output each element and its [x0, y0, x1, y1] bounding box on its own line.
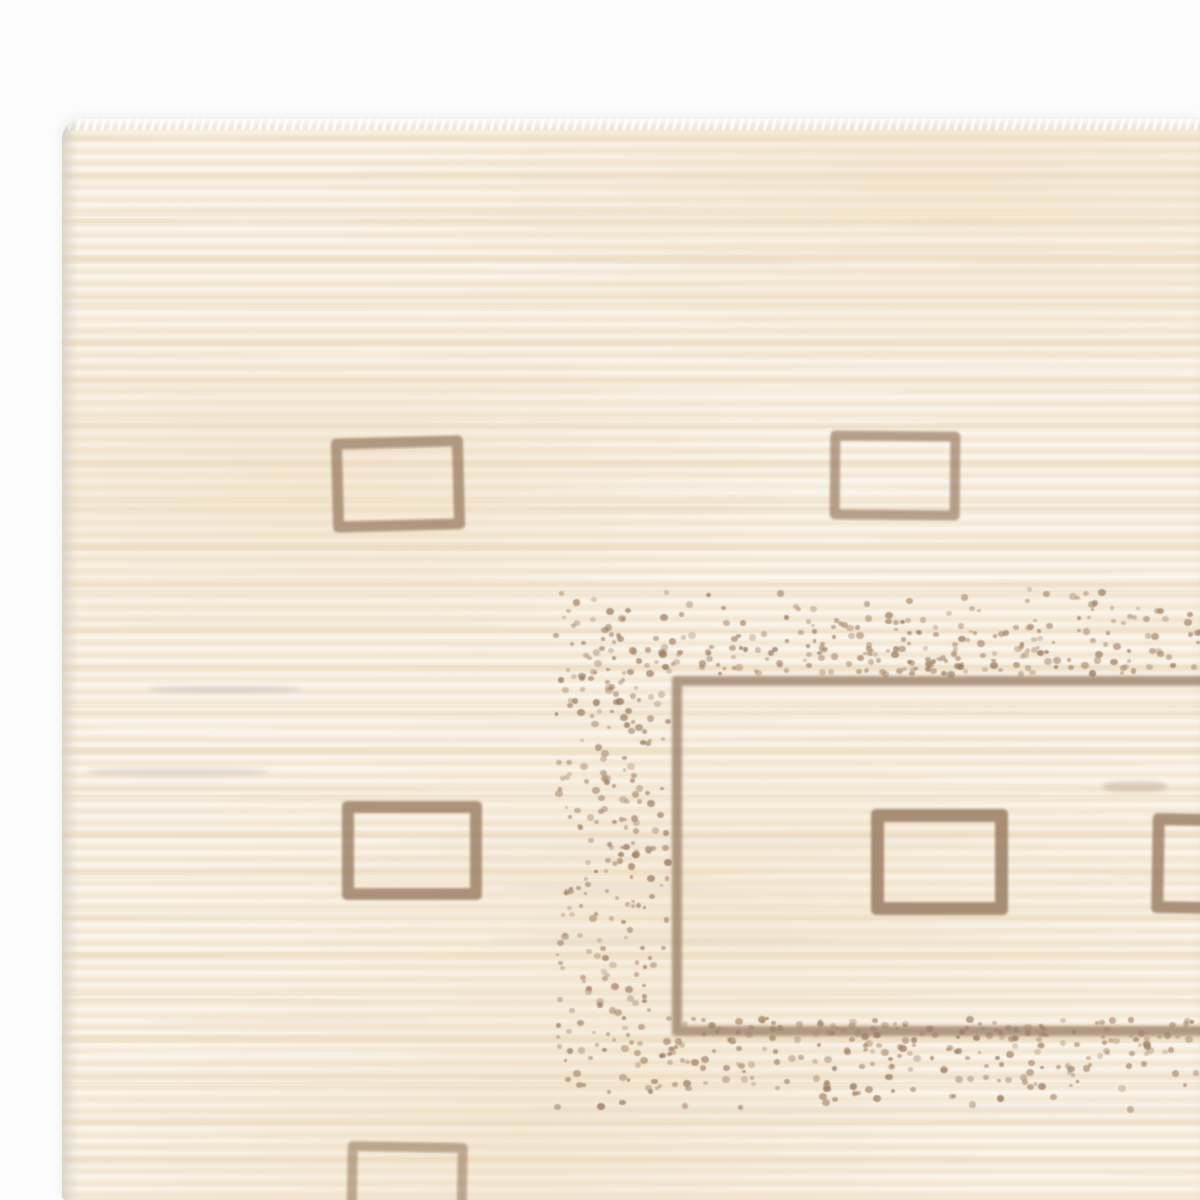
- weave-smudge: [150, 686, 300, 693]
- rug: [62, 118, 1200, 1200]
- open-square-motif: [830, 430, 961, 520]
- rug-photograph: Corner of a handwoven cream wool rug wit…: [0, 0, 1200, 1200]
- weave-smudge: [88, 768, 268, 776]
- open-square-motif: [871, 809, 1008, 915]
- open-square-motif: [346, 1141, 468, 1200]
- open-square-motif: [342, 801, 482, 900]
- open-square-motif: [1151, 813, 1200, 915]
- motif-layer: [62, 118, 1200, 1200]
- open-square-motif: [331, 435, 465, 532]
- weave-smudge: [1103, 781, 1167, 792]
